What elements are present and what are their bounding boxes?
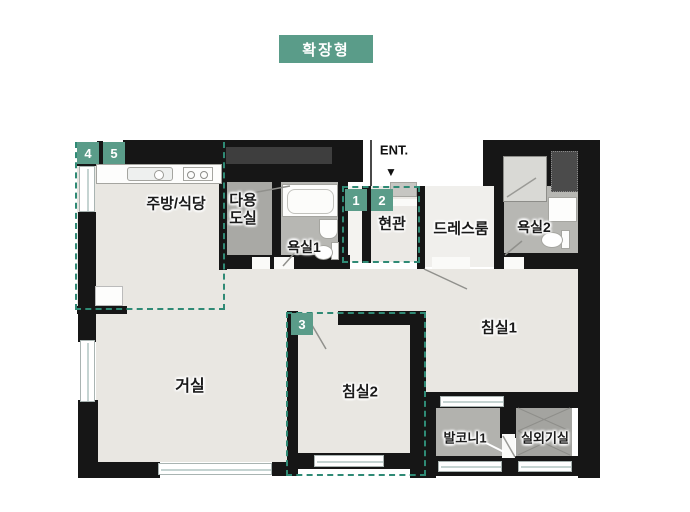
- entrance-label: ENT.: [380, 143, 408, 158]
- living-bottom-window: [158, 463, 272, 475]
- room-label-balcony1: 발코니1: [443, 428, 486, 447]
- bath2-door-gap: [504, 257, 524, 269]
- kitchen-cabinet: [95, 286, 123, 306]
- wall: [578, 186, 600, 478]
- zone-badge-1: 1: [345, 189, 367, 211]
- wall: [417, 186, 425, 269]
- zone-badge-2: 2: [371, 189, 393, 211]
- wall: [78, 212, 96, 342]
- room-label-outdoor-unit: 실외기실: [521, 428, 569, 447]
- bath2-shower: [503, 156, 547, 202]
- duct-area: [226, 147, 332, 164]
- room-label-bedroom2: 침실2: [342, 381, 378, 402]
- hall-floor: [225, 269, 348, 315]
- bath1-sink: [319, 219, 338, 239]
- room-label-dressroom: 드레스룸: [433, 218, 488, 239]
- bath2-sink: [548, 197, 577, 222]
- kitchen-sink: [127, 167, 173, 181]
- zone-badge-5: 5: [103, 142, 125, 164]
- bath1-tub-inner: [287, 189, 334, 214]
- utility-line1: 다용: [229, 192, 257, 209]
- zone-badge-4: 4: [77, 142, 99, 164]
- wall: [77, 306, 127, 314]
- dressroom-door-gap: [432, 257, 470, 269]
- room-label-living: 거실: [175, 372, 204, 396]
- wall: [272, 462, 298, 476]
- wall: [78, 462, 160, 478]
- living-left-window: [80, 340, 95, 402]
- sink-basin-icon: [154, 170, 164, 180]
- room-label-bedroom1: 침실1: [481, 317, 517, 338]
- room-label-bath1: 욕실1: [287, 237, 321, 257]
- entry-step: [390, 199, 417, 206]
- bath1-door-gap: [274, 257, 294, 269]
- balcony-door-gap: [502, 434, 515, 458]
- utility-line2: 도실: [229, 210, 257, 227]
- kitchen-window: [79, 166, 95, 212]
- bedroom2-window: [314, 455, 384, 467]
- room-label-kitchen: 주방/식당: [146, 193, 205, 214]
- bath2-cabinet: [551, 151, 578, 192]
- entry-shoe-cabinet: [390, 182, 417, 197]
- zone-badge-3: 3: [291, 313, 313, 335]
- outdoor-unit-window: [518, 461, 572, 472]
- stove-burner-icon: [187, 171, 195, 179]
- entrance-arrow-icon: ▼: [385, 165, 397, 179]
- room-label-bath2: 욕실2: [517, 217, 551, 237]
- utility-door-gap: [252, 257, 270, 269]
- bedroom1-balcony-window: [440, 396, 504, 407]
- wall: [123, 140, 232, 164]
- plan-type-badge: 확장형: [279, 35, 373, 63]
- wall: [410, 311, 426, 403]
- room-label-utility: 다용 도실: [229, 192, 257, 228]
- room-label-entry: 현관: [378, 213, 406, 234]
- wall: [272, 164, 281, 268]
- entrance-line: [370, 140, 372, 186]
- balcony-window: [438, 461, 502, 472]
- floorplan-canvas: 확장형: [0, 0, 690, 512]
- stove-burner-icon: [200, 171, 208, 179]
